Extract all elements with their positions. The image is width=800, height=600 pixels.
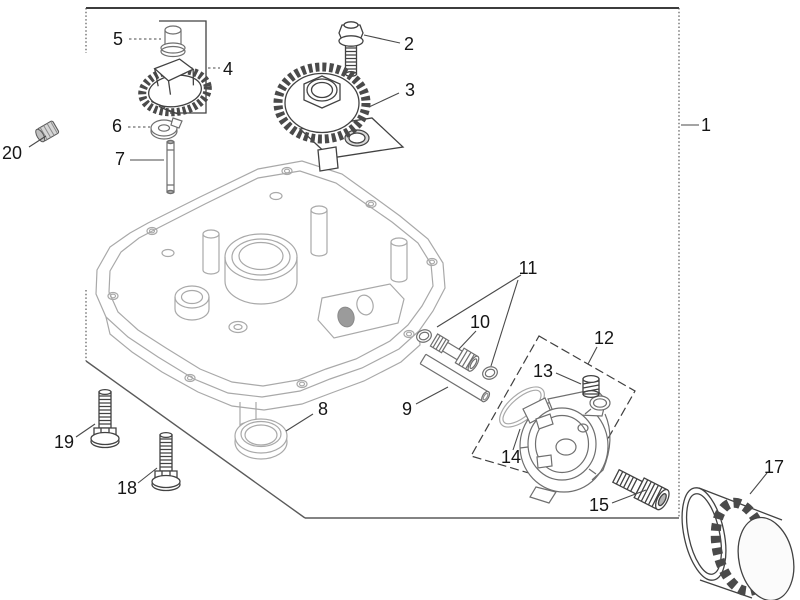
callout-4: 4 <box>223 59 233 79</box>
callout-2: 2 <box>404 34 414 54</box>
callout-20: 20 <box>2 143 22 163</box>
oil-filter-17 <box>675 484 800 600</box>
callout-3: 3 <box>405 80 415 100</box>
bolt-19 <box>91 390 119 448</box>
pickup-tube-10 <box>430 333 481 373</box>
callout-12: 12 <box>594 328 614 348</box>
bolt-18 <box>152 433 180 491</box>
callout-6: 6 <box>112 116 122 136</box>
callout-11: 11 <box>519 258 538 278</box>
callout-8: 8 <box>318 399 328 419</box>
plug-5 <box>161 26 185 57</box>
callout-19: 19 <box>54 432 74 452</box>
gear-assembly-3 <box>278 67 403 171</box>
parts-diagram-canvas: 1 2 3 4 5 6 7 8 9 10 11 12 13 14 15 17 1… <box>0 0 800 600</box>
callout-9: 9 <box>402 399 412 419</box>
oil-pump-body <box>520 389 610 503</box>
washer-6 <box>151 118 182 139</box>
bolt-2 <box>339 22 363 76</box>
plug-20 <box>34 120 59 143</box>
gear-4 <box>138 56 211 120</box>
oil-seal-8 <box>235 419 287 459</box>
shaft-pin-7 <box>167 140 174 193</box>
callout-15: 15 <box>589 495 609 515</box>
callout-1: 1 <box>701 115 711 135</box>
relief-spring-13 <box>583 376 599 398</box>
callout-7: 7 <box>115 149 125 169</box>
callout-10: 10 <box>470 312 490 332</box>
callout-18: 18 <box>117 478 137 498</box>
callout-13: 13 <box>533 361 553 381</box>
filter-nipple-15 <box>611 466 672 511</box>
callout-14: 14 <box>501 447 521 467</box>
oil-pan <box>96 161 445 430</box>
callout-5: 5 <box>113 29 123 49</box>
callout-17: 17 <box>764 457 784 477</box>
